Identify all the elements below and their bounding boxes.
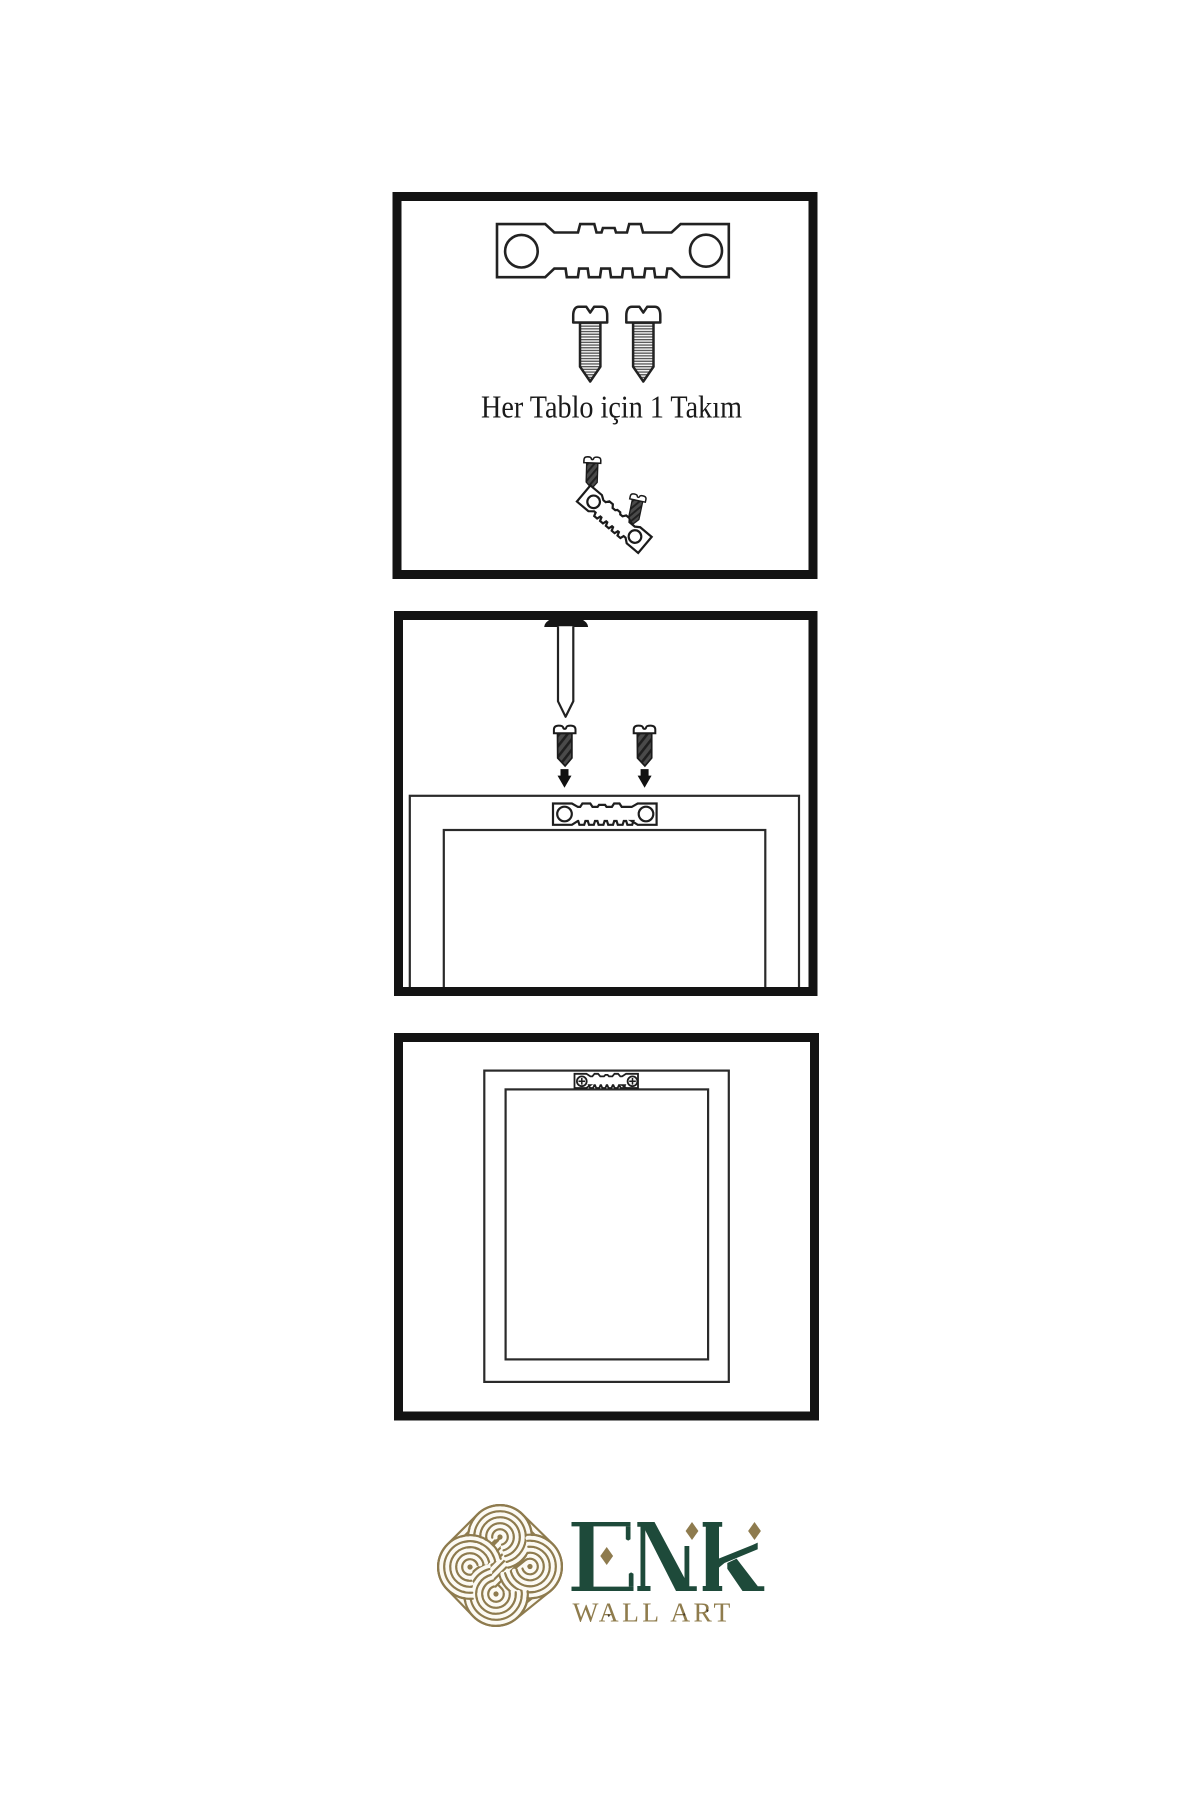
svg-text:WALL ART: WALL ART: [573, 1597, 734, 1628]
svg-text:Her Tablo için 1 Takım: Her Tablo için 1 Takım: [481, 389, 742, 425]
